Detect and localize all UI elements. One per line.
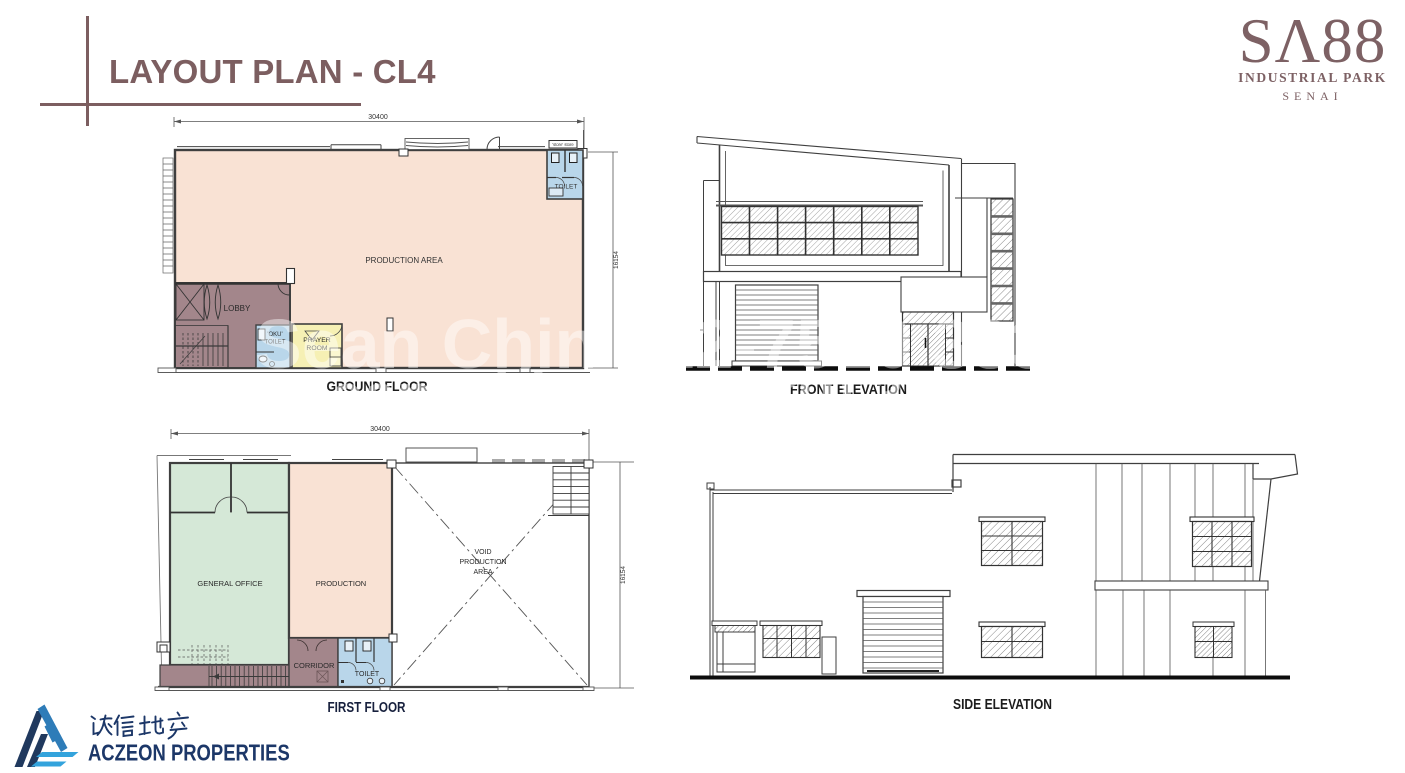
svg-text:LOBBY: LOBBY	[224, 304, 251, 313]
svg-text:PRODUCTION AREA: PRODUCTION AREA	[365, 256, 443, 265]
svg-text:GENERAL OFFICE: GENERAL OFFICE	[197, 579, 262, 588]
svg-text:16154: 16154	[620, 566, 627, 584]
svg-text:TOILET: TOILET	[555, 184, 578, 191]
svg-text:CORRIDOR: CORRIDOR	[294, 661, 335, 670]
svg-text:16154: 16154	[613, 251, 620, 269]
svg-text:PRODUCTION: PRODUCTION	[316, 579, 366, 588]
svg-text:'store' store: 'store' store	[552, 142, 574, 147]
svg-text:AREA: AREA	[473, 569, 492, 576]
svg-text:30400: 30400	[368, 114, 388, 121]
svg-text:ACZEON PROPERTIES: ACZEON PROPERTIES	[88, 740, 290, 766]
svg-text:PRODUCTION: PRODUCTION	[459, 559, 506, 566]
svg-text:SIDE ELEVATION: SIDE ELEVATION	[953, 697, 1052, 713]
svg-text:VOID: VOID	[474, 549, 491, 556]
svg-text:TOILET: TOILET	[355, 671, 380, 678]
